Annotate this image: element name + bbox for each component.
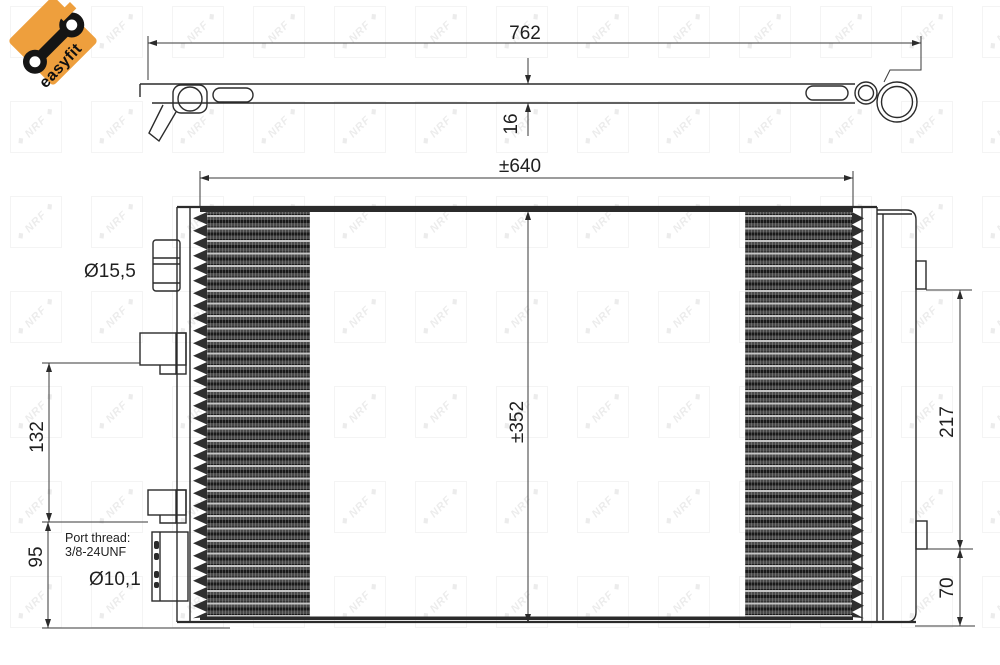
core-width-label: ±640 [475, 156, 565, 178]
tank-tab-upper [916, 261, 926, 289]
small-port-inner [859, 86, 874, 101]
tube-teeth-left [193, 212, 207, 618]
tank-lower-height-label: 70 [937, 566, 957, 610]
mounting-bracket-upper [140, 333, 186, 374]
top-view-dimensions [148, 36, 921, 136]
overall-length-label: 762 [490, 23, 560, 45]
lower-section-height-label: 95 [26, 535, 46, 579]
large-port-inner [882, 87, 913, 118]
top-port-diameter-label: Ø15,5 [84, 261, 136, 283]
thickness-label: 16 [501, 107, 521, 141]
slot-left [213, 88, 253, 102]
port-thread-note: Port thread: 3/8-24UNF [65, 532, 130, 559]
core-height-label: ±352 [507, 400, 527, 444]
slot-right [806, 86, 848, 100]
right-tank [877, 210, 927, 622]
bracket-spacing-label: 132 [27, 415, 47, 459]
tank-tab-lower [916, 521, 927, 549]
easyfit-logo: easyfit [0, 0, 112, 106]
tank-upper-height-label: 217 [937, 400, 957, 444]
receiver-drier [152, 532, 188, 601]
port-thread-line2: 3/8-24UNF [65, 546, 130, 560]
mounting-foot [149, 105, 176, 141]
top-side-plate [200, 208, 853, 212]
technical-drawing [0, 0, 1000, 665]
front-view-part [140, 207, 927, 622]
bottom-port-diameter-label: Ø10,1 [89, 569, 141, 591]
upper-port-connector [153, 240, 180, 291]
condenser-technical-drawing-page: ◆ NRF ◆◆ NRF ◆◆ NRF ◆◆ NRF ◆◆ NRF ◆◆ NRF… [0, 0, 1000, 665]
easyfit-logo-graphic [0, 0, 112, 106]
large-port-outer [877, 82, 917, 122]
pipe-end-left [178, 87, 202, 111]
port-thread-line1: Port thread: [65, 532, 130, 546]
mounting-bracket-lower [148, 490, 186, 523]
